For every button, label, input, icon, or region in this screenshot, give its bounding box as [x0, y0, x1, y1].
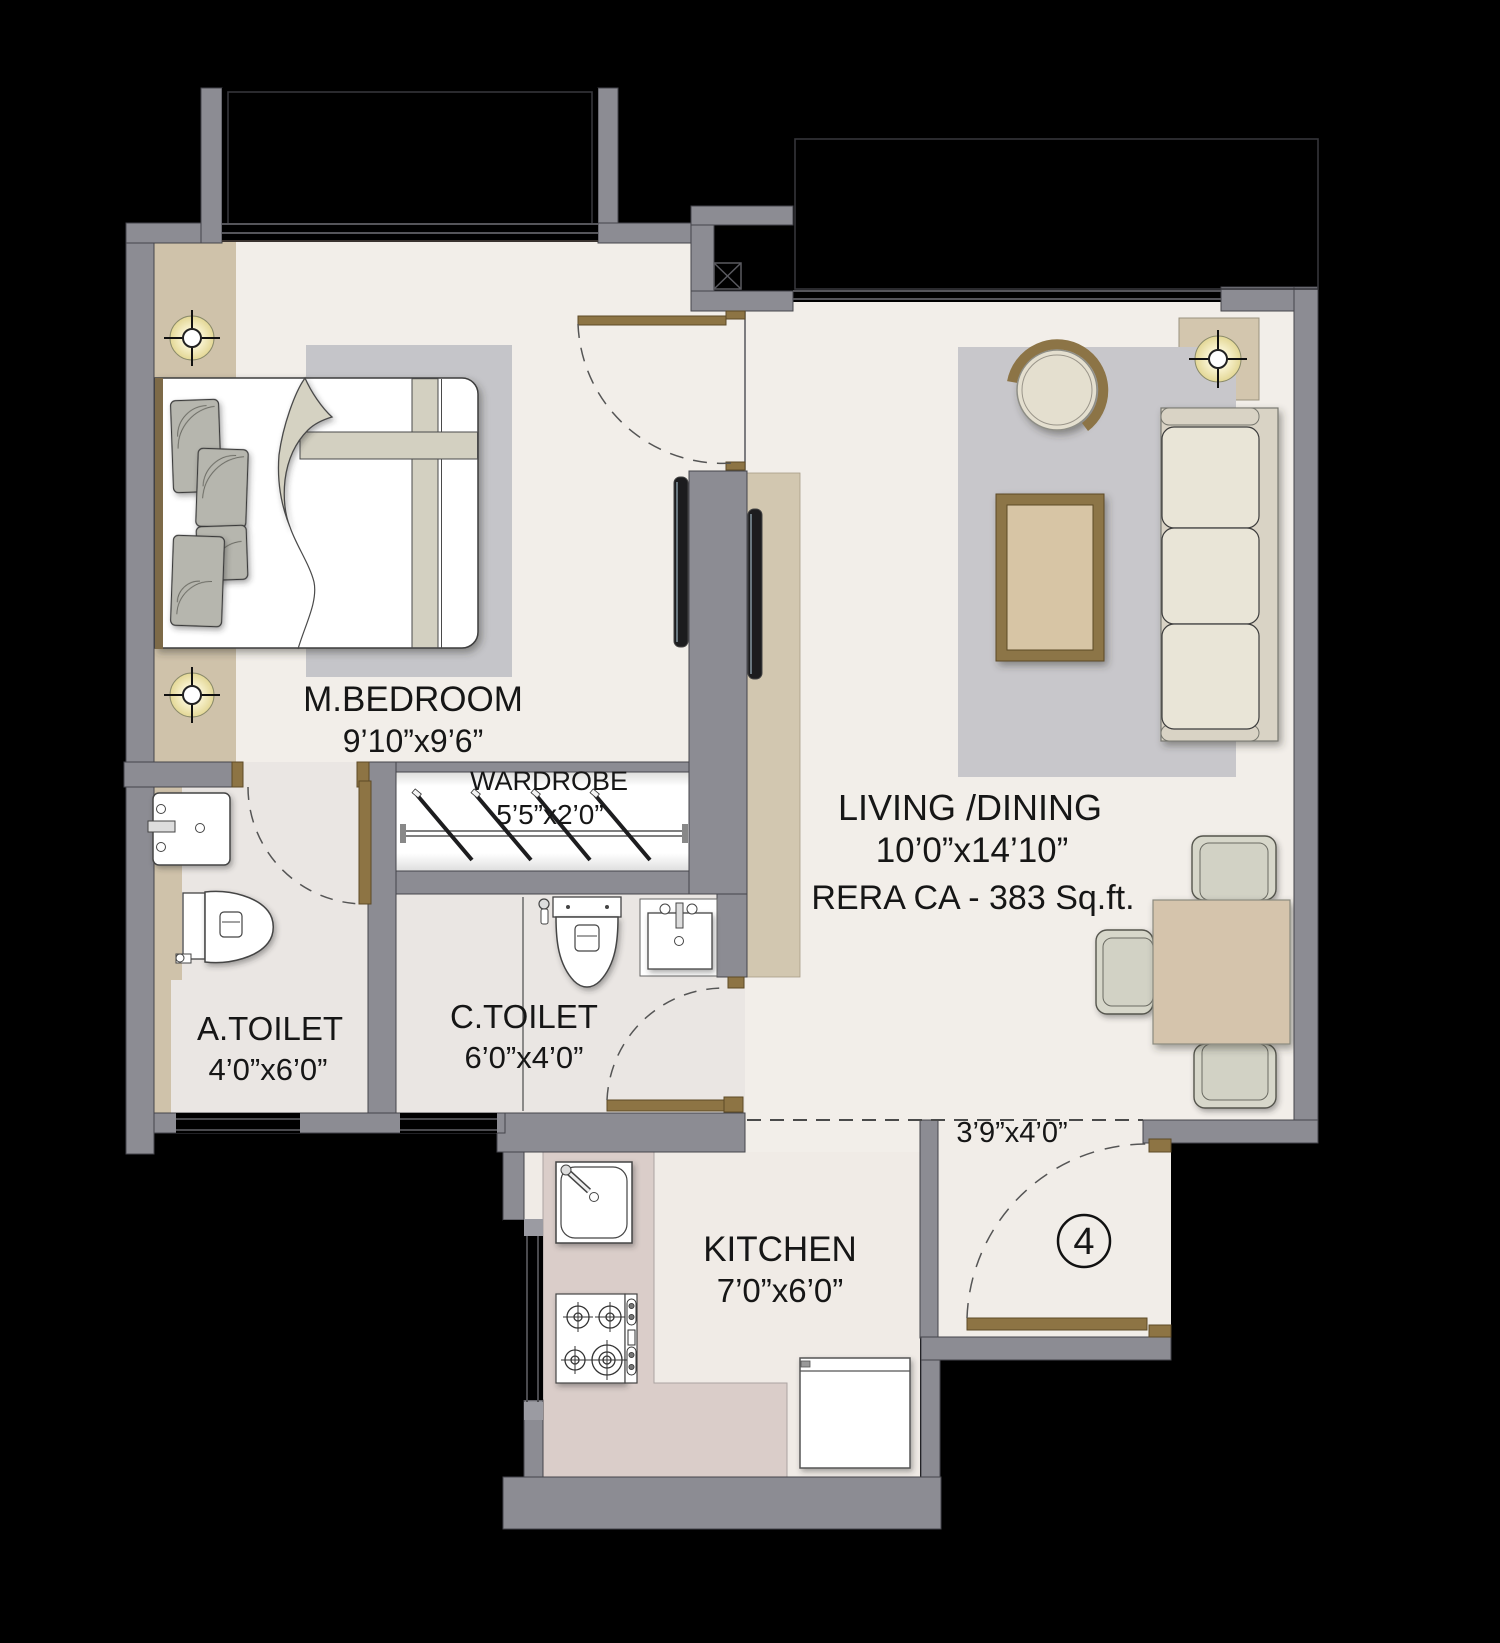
- svg-text:6’0”x4’0”: 6’0”x4’0”: [465, 1040, 584, 1075]
- svg-text:4: 4: [1073, 1221, 1094, 1263]
- svg-text:10’0”x14’10”: 10’0”x14’10”: [876, 831, 1069, 870]
- svg-text:4’0”x6’0”: 4’0”x6’0”: [209, 1052, 328, 1087]
- svg-text:C.TOILET: C.TOILET: [450, 998, 598, 1035]
- svg-text:KITCHEN: KITCHEN: [703, 1230, 857, 1269]
- svg-text:M.BEDROOM: M.BEDROOM: [303, 680, 523, 719]
- svg-text:5’5”x2’0”: 5’5”x2’0”: [496, 799, 603, 830]
- svg-text:LIVING /DINING: LIVING /DINING: [838, 787, 1102, 828]
- svg-text:A.TOILET: A.TOILET: [197, 1010, 343, 1047]
- svg-text:3’9”x4’0”: 3’9”x4’0”: [956, 1117, 1067, 1149]
- svg-text:RERA CA - 383 Sq.ft.: RERA CA - 383 Sq.ft.: [811, 879, 1134, 917]
- svg-text:7’0”x6’0”: 7’0”x6’0”: [717, 1272, 844, 1309]
- svg-text:9’10”x9’6”: 9’10”x9’6”: [343, 723, 484, 759]
- svg-text:WARDROBE: WARDROBE: [470, 766, 628, 796]
